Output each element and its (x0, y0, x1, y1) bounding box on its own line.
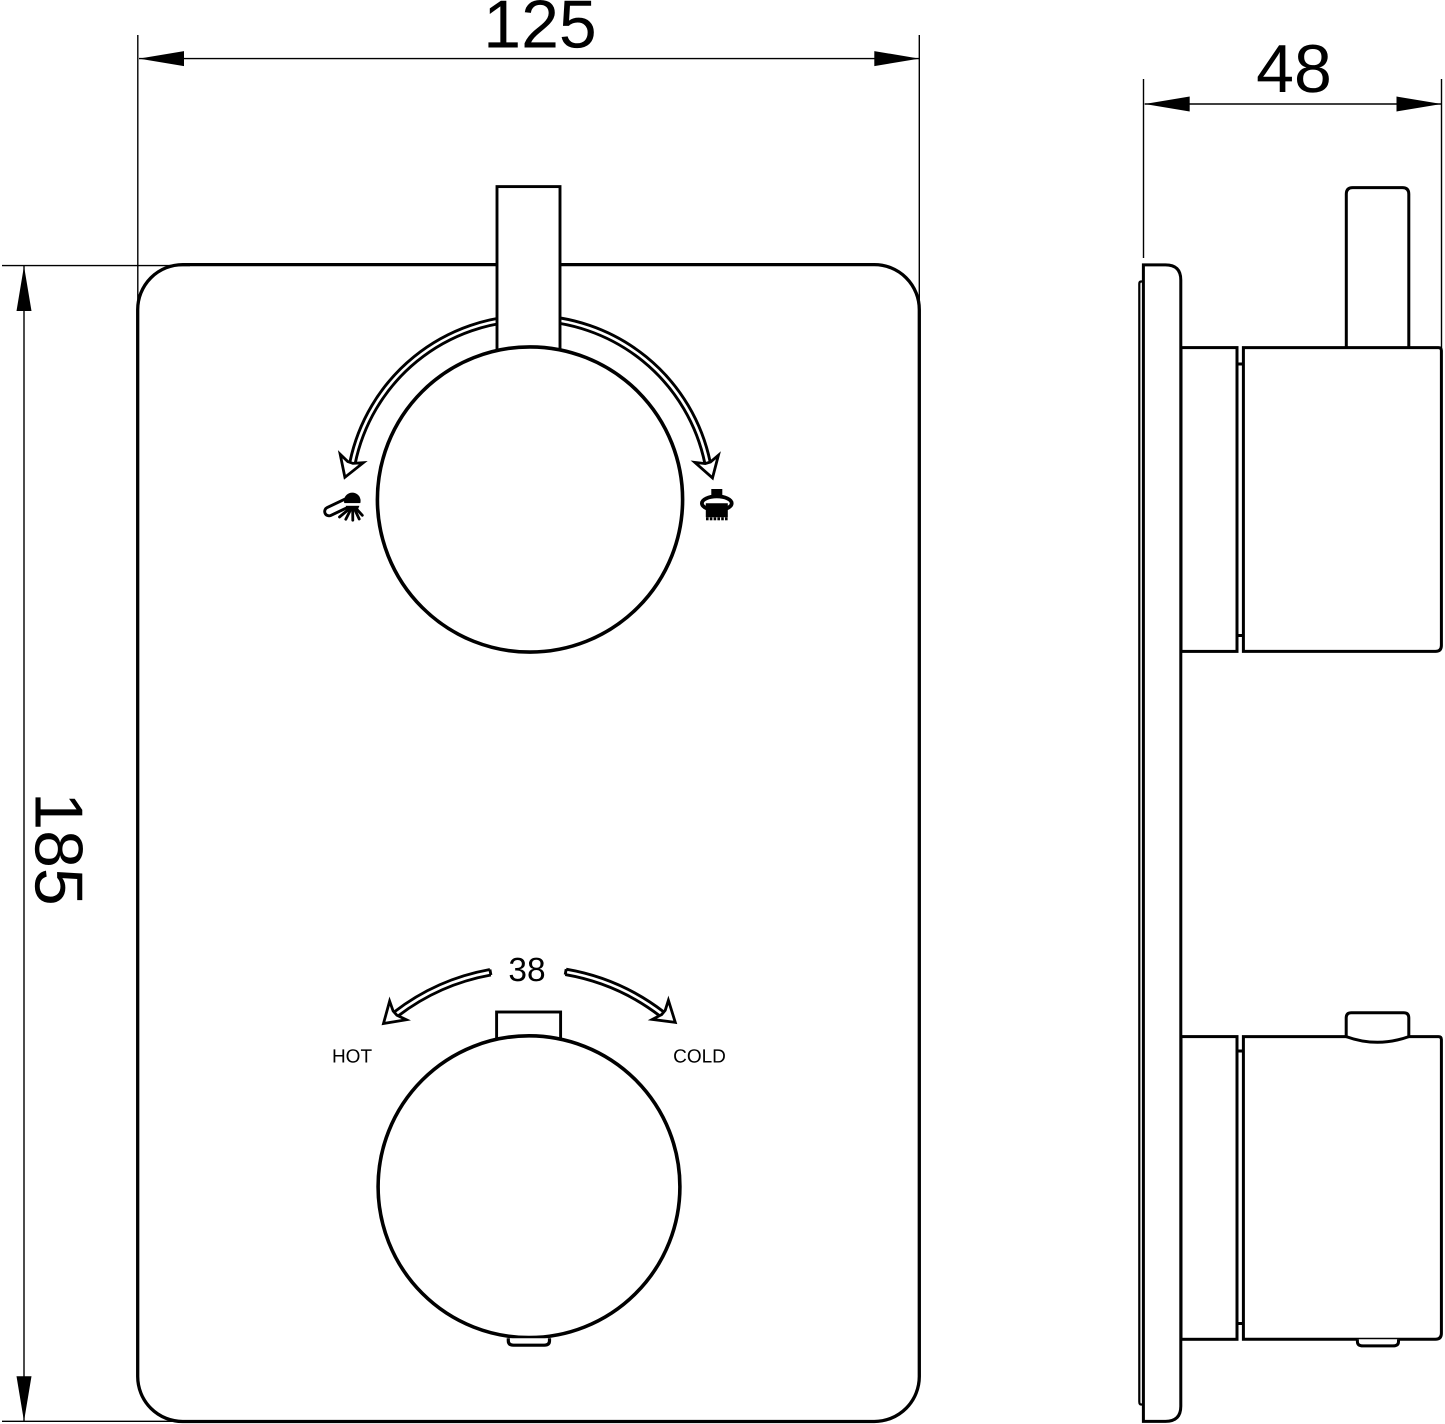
svg-text:125: 125 (483, 0, 596, 63)
svg-text:38: 38 (508, 952, 545, 989)
svg-text:185: 185 (20, 792, 96, 905)
svg-text:HOT: HOT (332, 1047, 373, 1068)
svg-text:48: 48 (1256, 31, 1332, 107)
svg-text:COLD: COLD (673, 1047, 726, 1068)
